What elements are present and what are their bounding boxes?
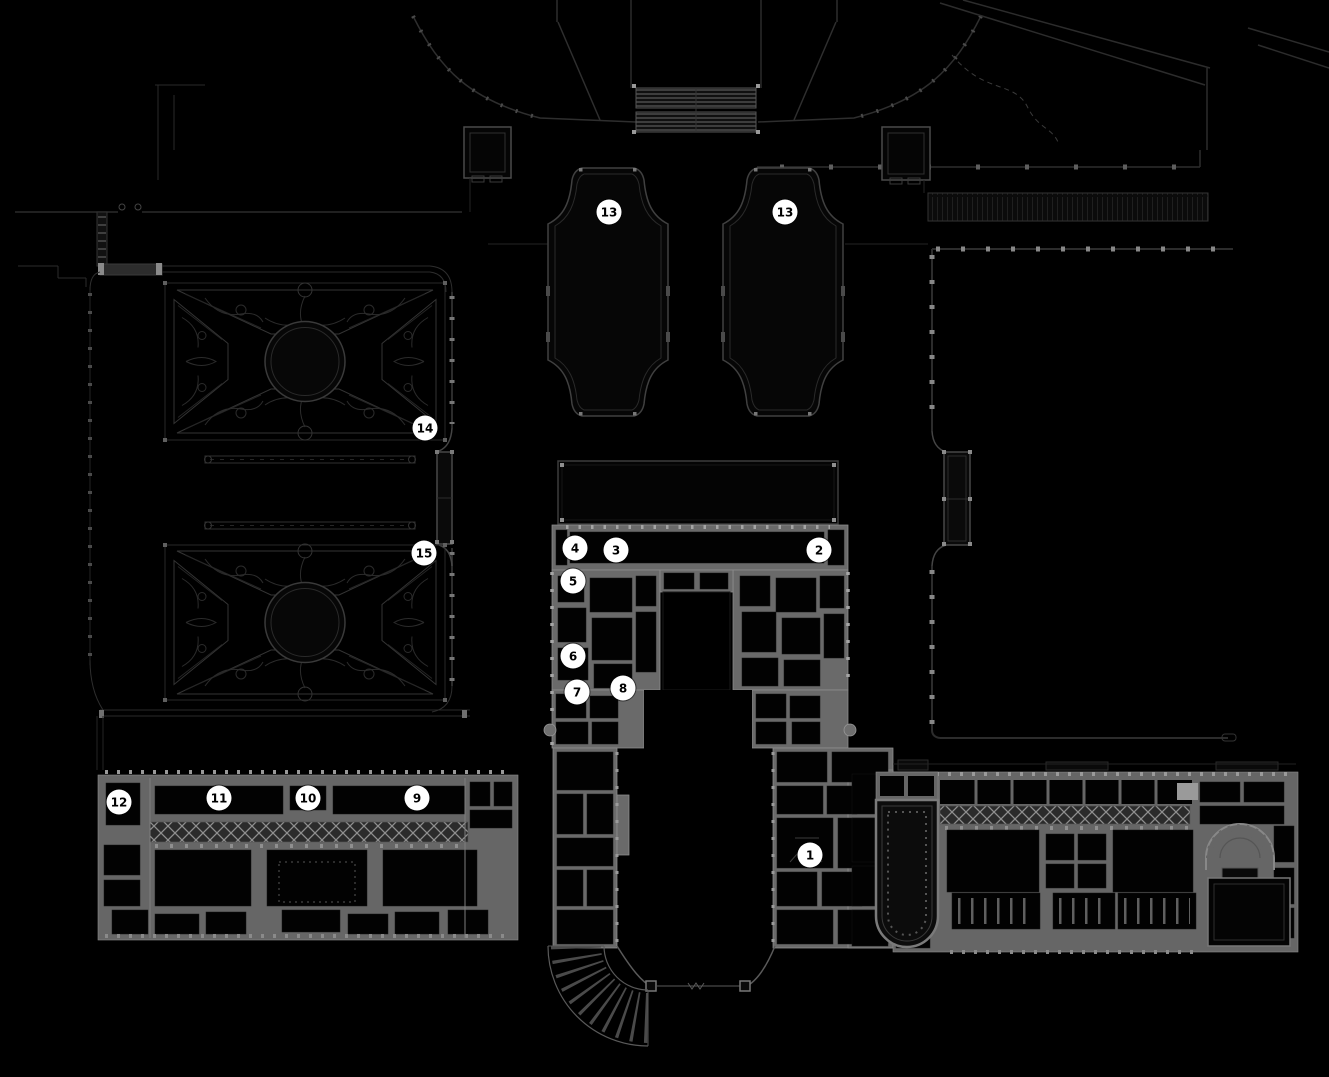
map-marker-4[interactable]: 4 xyxy=(563,536,588,561)
boundary-wall-north xyxy=(757,150,1200,167)
map-marker-12[interactable]: 12 xyxy=(107,790,132,815)
map-marker-6[interactable]: 6 xyxy=(561,644,586,669)
palace-map: 12345678910111213131415 xyxy=(0,0,1329,1077)
map-marker-15[interactable]: 15 xyxy=(412,541,437,566)
floor-plan-drawing xyxy=(0,0,1329,1077)
palace-main-block xyxy=(544,461,893,950)
map-marker-2[interactable]: 2 xyxy=(807,538,832,563)
hedge-strip xyxy=(928,193,1208,221)
corner-marks xyxy=(155,85,205,180)
chapel xyxy=(876,772,938,947)
map-marker-1[interactable]: 1 xyxy=(798,843,823,868)
map-marker-3[interactable]: 3 xyxy=(604,538,629,563)
top-right-avenues xyxy=(940,0,1329,150)
map-marker-7[interactable]: 7 xyxy=(565,680,590,705)
court-railing xyxy=(617,946,775,991)
map-marker-11[interactable]: 11 xyxy=(207,786,232,811)
map-marker-10[interactable]: 10 xyxy=(296,786,321,811)
south-parterre-terrace-edges xyxy=(15,204,470,770)
fan-staircase xyxy=(548,946,648,1046)
grand-staircase xyxy=(632,84,760,134)
broderie-parterre-upper xyxy=(163,281,447,442)
map-marker-14[interactable]: 14 xyxy=(413,416,438,441)
map-marker-13[interactable]: 13 xyxy=(773,200,798,225)
water-parterres xyxy=(546,168,845,416)
map-marker-9[interactable]: 9 xyxy=(405,786,430,811)
map-marker-5[interactable]: 5 xyxy=(561,569,586,594)
flower-border-bands xyxy=(205,456,416,529)
map-marker-13[interactable]: 13 xyxy=(597,200,622,225)
north-parterre-borders xyxy=(898,249,1278,770)
garden-pavilions xyxy=(464,127,930,244)
broderie-parterre-lower xyxy=(163,543,447,702)
map-marker-8[interactable]: 8 xyxy=(611,676,636,701)
